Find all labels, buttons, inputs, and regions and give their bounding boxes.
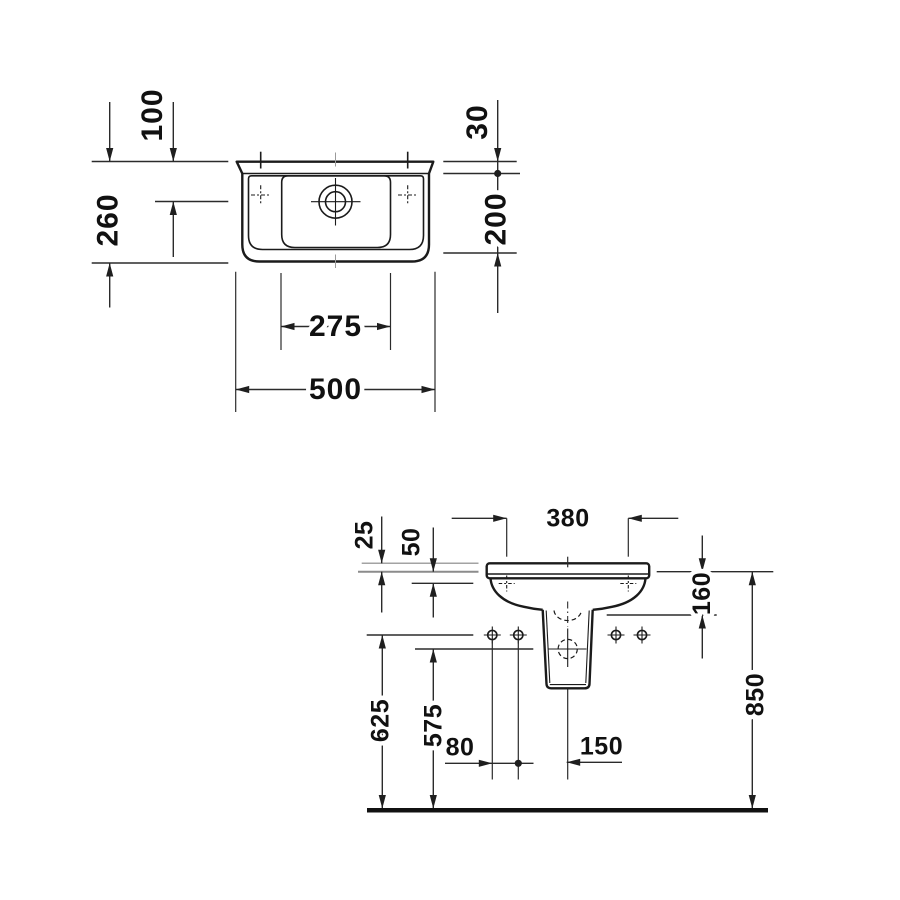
dim-label-275: 275 <box>309 310 362 343</box>
dim-label-80: 80 <box>446 734 475 762</box>
dim-dot <box>494 170 501 177</box>
dim-label-25: 25 <box>351 521 379 550</box>
dim-label-30: 30 <box>461 104 494 139</box>
dim-label-160: 160 <box>688 572 716 615</box>
drawing-canvas: 100 260 30 200 275 500 <box>0 0 900 900</box>
technical-drawing: 100 260 30 200 275 500 <box>0 0 900 900</box>
dim-label-380: 380 <box>546 504 589 532</box>
dim-label-100: 100 <box>136 88 169 141</box>
background <box>0 0 900 900</box>
dim-dot <box>515 760 522 767</box>
dim-label-575: 575 <box>420 704 448 747</box>
dim-label-50: 50 <box>398 528 426 557</box>
dim-label-200: 200 <box>480 192 513 245</box>
dim-label-500: 500 <box>309 373 362 406</box>
dim-label-150: 150 <box>580 733 623 761</box>
dim-label-260: 260 <box>92 193 125 246</box>
dim-label-850: 850 <box>742 673 770 716</box>
dim-label-625: 625 <box>367 699 395 742</box>
